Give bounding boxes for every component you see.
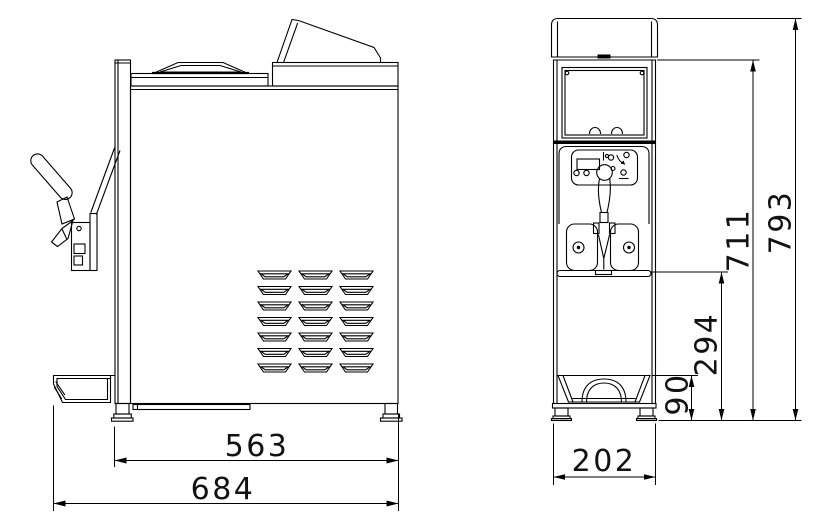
dim-body-depth: 563: [225, 429, 290, 464]
handle-link: [57, 197, 75, 224]
finger-notches: [590, 128, 623, 134]
dispense-handle-side: [28, 151, 75, 246]
drawing-canvas: 563 684: [0, 0, 836, 516]
ledge: [557, 271, 651, 277]
button-left-icon: [574, 170, 579, 175]
drip-tray-front: [558, 376, 650, 403]
dim-body-height: 711: [722, 208, 757, 273]
dim-overall-height: 793: [764, 190, 799, 255]
base-feet-front: [552, 404, 657, 421]
nozzle: [599, 235, 610, 269]
button-icon: [608, 155, 613, 160]
top-cap: [552, 19, 658, 59]
dim-tray-height: 90: [661, 372, 696, 415]
dims-front: 90 294 711 793 202: [554, 19, 802, 485]
side-view: 563 684: [28, 20, 402, 511]
dispense-head-side: [72, 148, 120, 271]
front-board: [115, 60, 131, 404]
vent-louvers: [258, 271, 373, 372]
dim-outlet-height: 294: [690, 312, 725, 377]
front-handle: [594, 165, 616, 234]
button-right-icon: [584, 170, 589, 175]
divider-band: [554, 141, 656, 145]
machine-body-side: [131, 86, 399, 404]
dim-overall-width: 202: [572, 444, 637, 479]
hopper-window: [562, 68, 647, 139]
dim-overall-depth: 684: [191, 472, 256, 507]
dims-side: 563 684: [54, 406, 399, 511]
top-lid: [131, 63, 268, 87]
drip-tray-side: [54, 376, 115, 403]
technical-drawing: 563 684: [0, 0, 836, 516]
freeze-head: [557, 224, 651, 277]
machine-body-front: [554, 60, 656, 404]
handle-knob: [597, 165, 613, 181]
display: [577, 159, 600, 170]
front-view: 90 294 711 793 202: [552, 19, 802, 485]
cup-icon: [621, 170, 626, 175]
base-feet-side: [112, 404, 403, 422]
handle-grip: [28, 151, 75, 202]
cap-latch: [598, 55, 611, 59]
tilted-lid: [277, 20, 381, 63]
hopper-box-side: [273, 20, 399, 87]
